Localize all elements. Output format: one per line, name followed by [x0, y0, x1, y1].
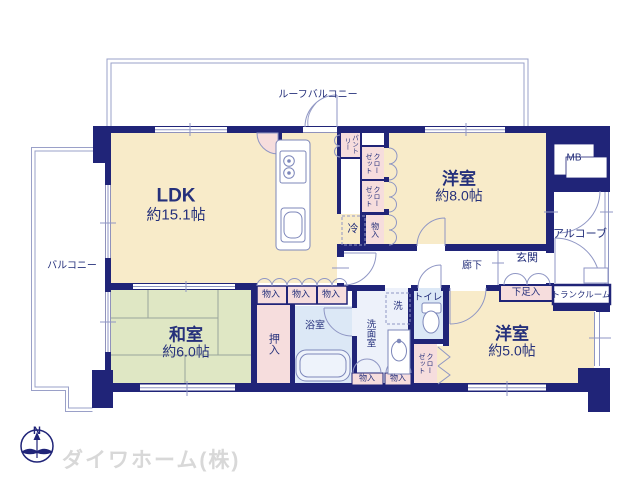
label-alcove: アルコーブ — [553, 229, 607, 241]
room-label-bedroom5: 洋室 約5.0帖 — [488, 325, 535, 358]
bedroom8-size: 約8.0帖 — [435, 189, 482, 204]
room-label-ldk: LDK 約15.1帖 — [146, 187, 205, 224]
room-label-tatami: 和室 約6.0帖 — [162, 326, 209, 359]
bedroom5-name: 洋室 — [488, 325, 535, 343]
label-meter-box: MB — [567, 154, 582, 165]
bedroom5-size: 約5.0帖 — [488, 344, 535, 359]
label-storage-5: 物入 — [390, 375, 406, 384]
ldk-name: LDK — [146, 187, 205, 208]
tatami-name: 和室 — [162, 326, 209, 344]
label-closet-1: クローゼット — [364, 152, 380, 174]
compass-icon: N — [14, 420, 60, 468]
room-label-bedroom8: 洋室 約8.0帖 — [435, 170, 482, 203]
label-storage-1: 物入 — [262, 290, 280, 300]
label-closet-3: クローゼット — [417, 352, 433, 374]
label-balcony: バルコニー — [47, 262, 97, 273]
label-storage-4: 物入 — [359, 375, 375, 384]
label-storage-3: 物入 — [322, 290, 340, 300]
tatami-size: 約6.0帖 — [162, 345, 209, 360]
label-storage-2: 物入 — [292, 290, 310, 300]
label-refrigerator: 冷 — [348, 224, 359, 236]
label-hallway: 廊下 — [462, 262, 482, 273]
floorplan-page: ルーフバルコニー バルコニー LDK 約15.1帖 洋室 約8.0帖 和室 約6… — [0, 0, 640, 480]
label-trunk-room: トランクルーム — [552, 290, 611, 299]
label-futon-closet: 押入 — [267, 331, 280, 357]
label-pantry: パントリー — [343, 134, 358, 155]
company-name: ダイワホーム(株) — [62, 444, 240, 474]
ldk-size: 約15.1帖 — [146, 207, 205, 223]
label-shoe-cabinet: 下足入 — [512, 288, 541, 298]
label-roof-balcony: ルーフバルコニー — [278, 91, 357, 102]
label-toilet: トイレ — [414, 293, 443, 303]
label-storage-6: 物入 — [370, 221, 379, 239]
label-washroom: 洗面室 — [364, 315, 375, 351]
bedroom8-name: 洋室 — [435, 170, 482, 188]
floorplan-drawing — [0, 0, 640, 480]
label-washer: 洗 — [393, 302, 403, 312]
label-closet-2: クローゼット — [364, 185, 380, 207]
label-bathroom: 浴室 — [305, 322, 325, 333]
label-entrance: 玄関 — [516, 253, 538, 265]
